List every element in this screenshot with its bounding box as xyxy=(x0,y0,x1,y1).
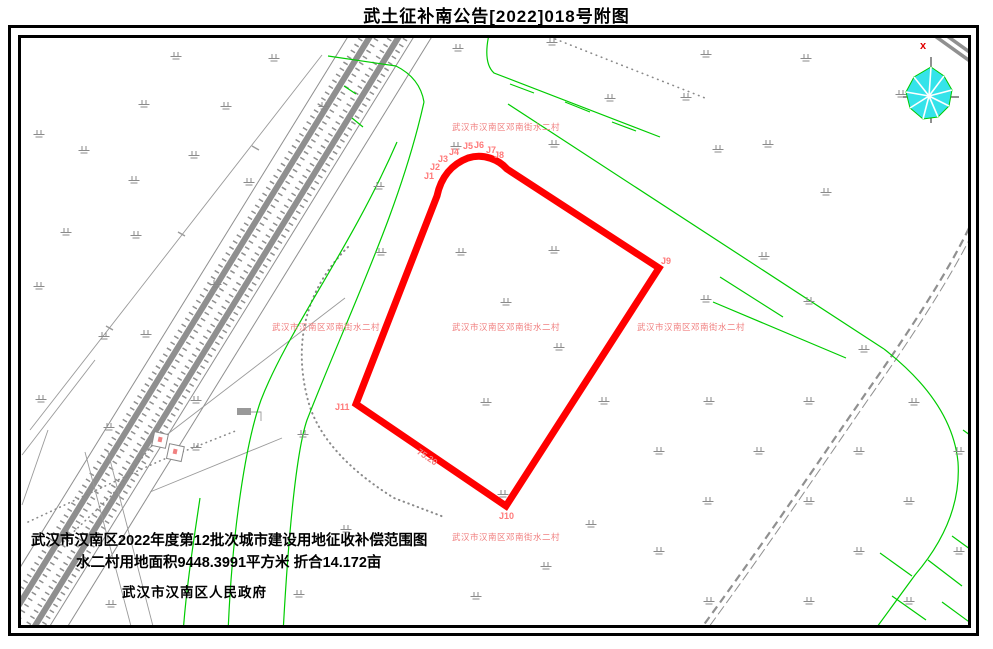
grass-symbol xyxy=(141,330,152,337)
land-acquisition-map-page: { "title": "武土征补南公告[2022]018号附图", "annot… xyxy=(0,0,993,649)
grass-symbol xyxy=(549,140,560,147)
grass-symbol xyxy=(599,397,610,404)
map-note-area: 水二村用地面积9448.3991平方米 折合14.172亩 xyxy=(76,551,381,572)
grass-symbol xyxy=(896,90,907,97)
village-label: 武汉市汉南区邓南街水二村 xyxy=(452,121,560,133)
map-note-title: 武汉市汉南区2022年度第12批次城市建设用地征收补偿范围图 xyxy=(31,529,427,550)
grass-symbol xyxy=(804,397,815,404)
grass-symbol xyxy=(453,44,464,51)
boundary-point-label: J1 xyxy=(424,171,434,181)
grass-symbol xyxy=(703,497,714,504)
grass-symbol xyxy=(294,590,305,597)
grass-symbol xyxy=(704,597,715,604)
compass-north-label: x xyxy=(920,40,926,52)
grass-symbol xyxy=(654,547,665,554)
boundary-point-label: J5 xyxy=(463,141,473,151)
map-viewport: 武汉市汉南区邓南街水二村武汉市汉南区邓南街水二村武汉市汉南区邓南街水二村武汉市汉… xyxy=(21,38,968,625)
grass-symbol xyxy=(801,54,812,61)
grass-symbol xyxy=(549,246,560,253)
grass-symbol xyxy=(456,248,467,255)
map-title: 武土征补南公告[2022]018号附图 xyxy=(0,2,993,27)
grass-symbol xyxy=(36,395,47,402)
grass-symbol xyxy=(909,398,920,405)
grass-symbol xyxy=(704,397,715,404)
boundary-point-label: J3 xyxy=(438,154,448,164)
grass-symbol xyxy=(501,298,512,305)
grass-symbol xyxy=(191,396,202,403)
boundary-point-label: J8 xyxy=(494,150,504,160)
grass-symbol xyxy=(701,50,712,57)
boundary-point-label: J6 xyxy=(474,140,484,150)
grass-symbol xyxy=(34,282,45,289)
boundary-point-label: J10 xyxy=(499,511,514,521)
grass-symbol xyxy=(541,562,552,569)
grass-symbol xyxy=(904,597,915,604)
village-label: 武汉市汉南区邓南街水二村 xyxy=(637,321,745,333)
grass-symbol xyxy=(586,520,597,527)
grass-symbol xyxy=(701,295,712,302)
village-label: 武汉市汉南区邓南街水二村 xyxy=(452,531,560,543)
grass-symbol xyxy=(106,600,117,607)
grass-symbol xyxy=(131,231,142,238)
grass-symbol xyxy=(79,146,90,153)
grass-symbol xyxy=(554,343,565,350)
grass-symbol xyxy=(189,151,200,158)
village-label: 武汉市汉南区邓南街水二村 xyxy=(452,321,560,333)
grass-symbol xyxy=(904,497,915,504)
grass-symbol xyxy=(854,447,865,454)
boundary-point-label: J11 xyxy=(335,402,350,412)
grass-symbol xyxy=(498,490,509,497)
grass-symbol xyxy=(804,497,815,504)
grass-symbol xyxy=(754,447,765,454)
grass-symbol xyxy=(269,54,280,61)
boundary-point-label: J4 xyxy=(449,147,459,157)
grass-symbol xyxy=(605,94,616,101)
grass-symbol xyxy=(804,597,815,604)
grass-symbol xyxy=(759,252,770,259)
grass-symbol xyxy=(221,102,232,109)
grass-symbol xyxy=(61,228,72,235)
grass-symbol xyxy=(859,345,870,352)
village-label: 武汉市汉南区邓南街水二村 xyxy=(272,321,380,333)
grass-symbol xyxy=(954,547,965,554)
grass-symbol xyxy=(481,398,492,405)
grass-symbol xyxy=(34,130,45,137)
boundary-point-label: J9 xyxy=(661,256,671,266)
grass-symbol xyxy=(129,176,140,183)
grass-symbol xyxy=(763,140,774,147)
grass-symbol xyxy=(471,592,482,599)
grass-symbol xyxy=(171,52,182,59)
grass-symbol xyxy=(821,188,832,195)
grass-symbol xyxy=(713,145,724,152)
grass-symbol xyxy=(681,93,692,100)
compass-icon xyxy=(903,57,959,123)
grass-symbol xyxy=(139,100,150,107)
grass-symbol xyxy=(244,178,255,185)
map-note-government: 武汉市汉南区人民政府 xyxy=(122,581,267,601)
grass-symbol xyxy=(654,447,665,454)
grass-symbol xyxy=(854,547,865,554)
